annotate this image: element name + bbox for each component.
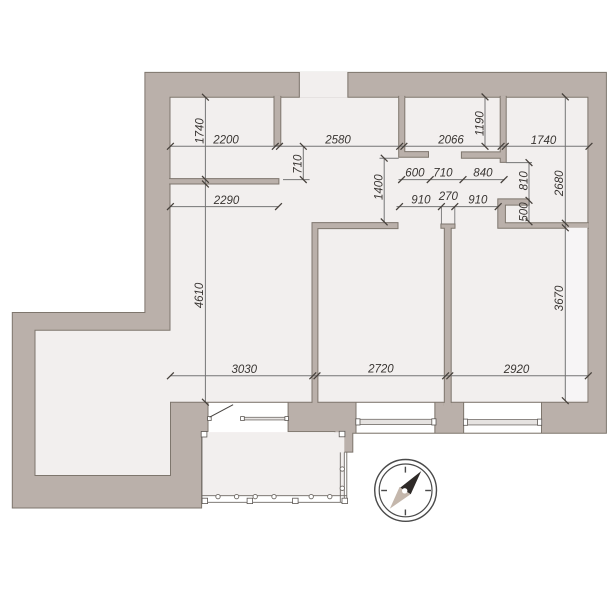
svg-text:2720: 2720 <box>367 364 394 376</box>
svg-text:1740: 1740 <box>195 118 207 144</box>
svg-text:270: 270 <box>438 191 459 203</box>
svg-text:2200: 2200 <box>212 134 239 146</box>
svg-text:2580: 2580 <box>324 134 351 146</box>
svg-text:500: 500 <box>519 202 531 222</box>
svg-text:2680: 2680 <box>554 170 566 197</box>
svg-text:1190: 1190 <box>474 111 486 136</box>
svg-text:4610: 4610 <box>194 282 206 308</box>
svg-text:710: 710 <box>433 167 453 179</box>
svg-text:710: 710 <box>293 154 305 174</box>
svg-text:910: 910 <box>411 194 431 206</box>
svg-text:2920: 2920 <box>503 364 530 376</box>
svg-text:600: 600 <box>405 167 425 179</box>
svg-text:1400: 1400 <box>374 174 386 200</box>
svg-text:910: 910 <box>468 194 488 206</box>
svg-text:3030: 3030 <box>232 364 258 376</box>
svg-text:3670: 3670 <box>554 285 566 311</box>
svg-text:810: 810 <box>518 171 530 191</box>
svg-text:2066: 2066 <box>437 135 464 147</box>
svg-text:840: 840 <box>473 167 493 179</box>
svg-text:1740: 1740 <box>531 135 557 147</box>
svg-text:2290: 2290 <box>213 195 240 207</box>
